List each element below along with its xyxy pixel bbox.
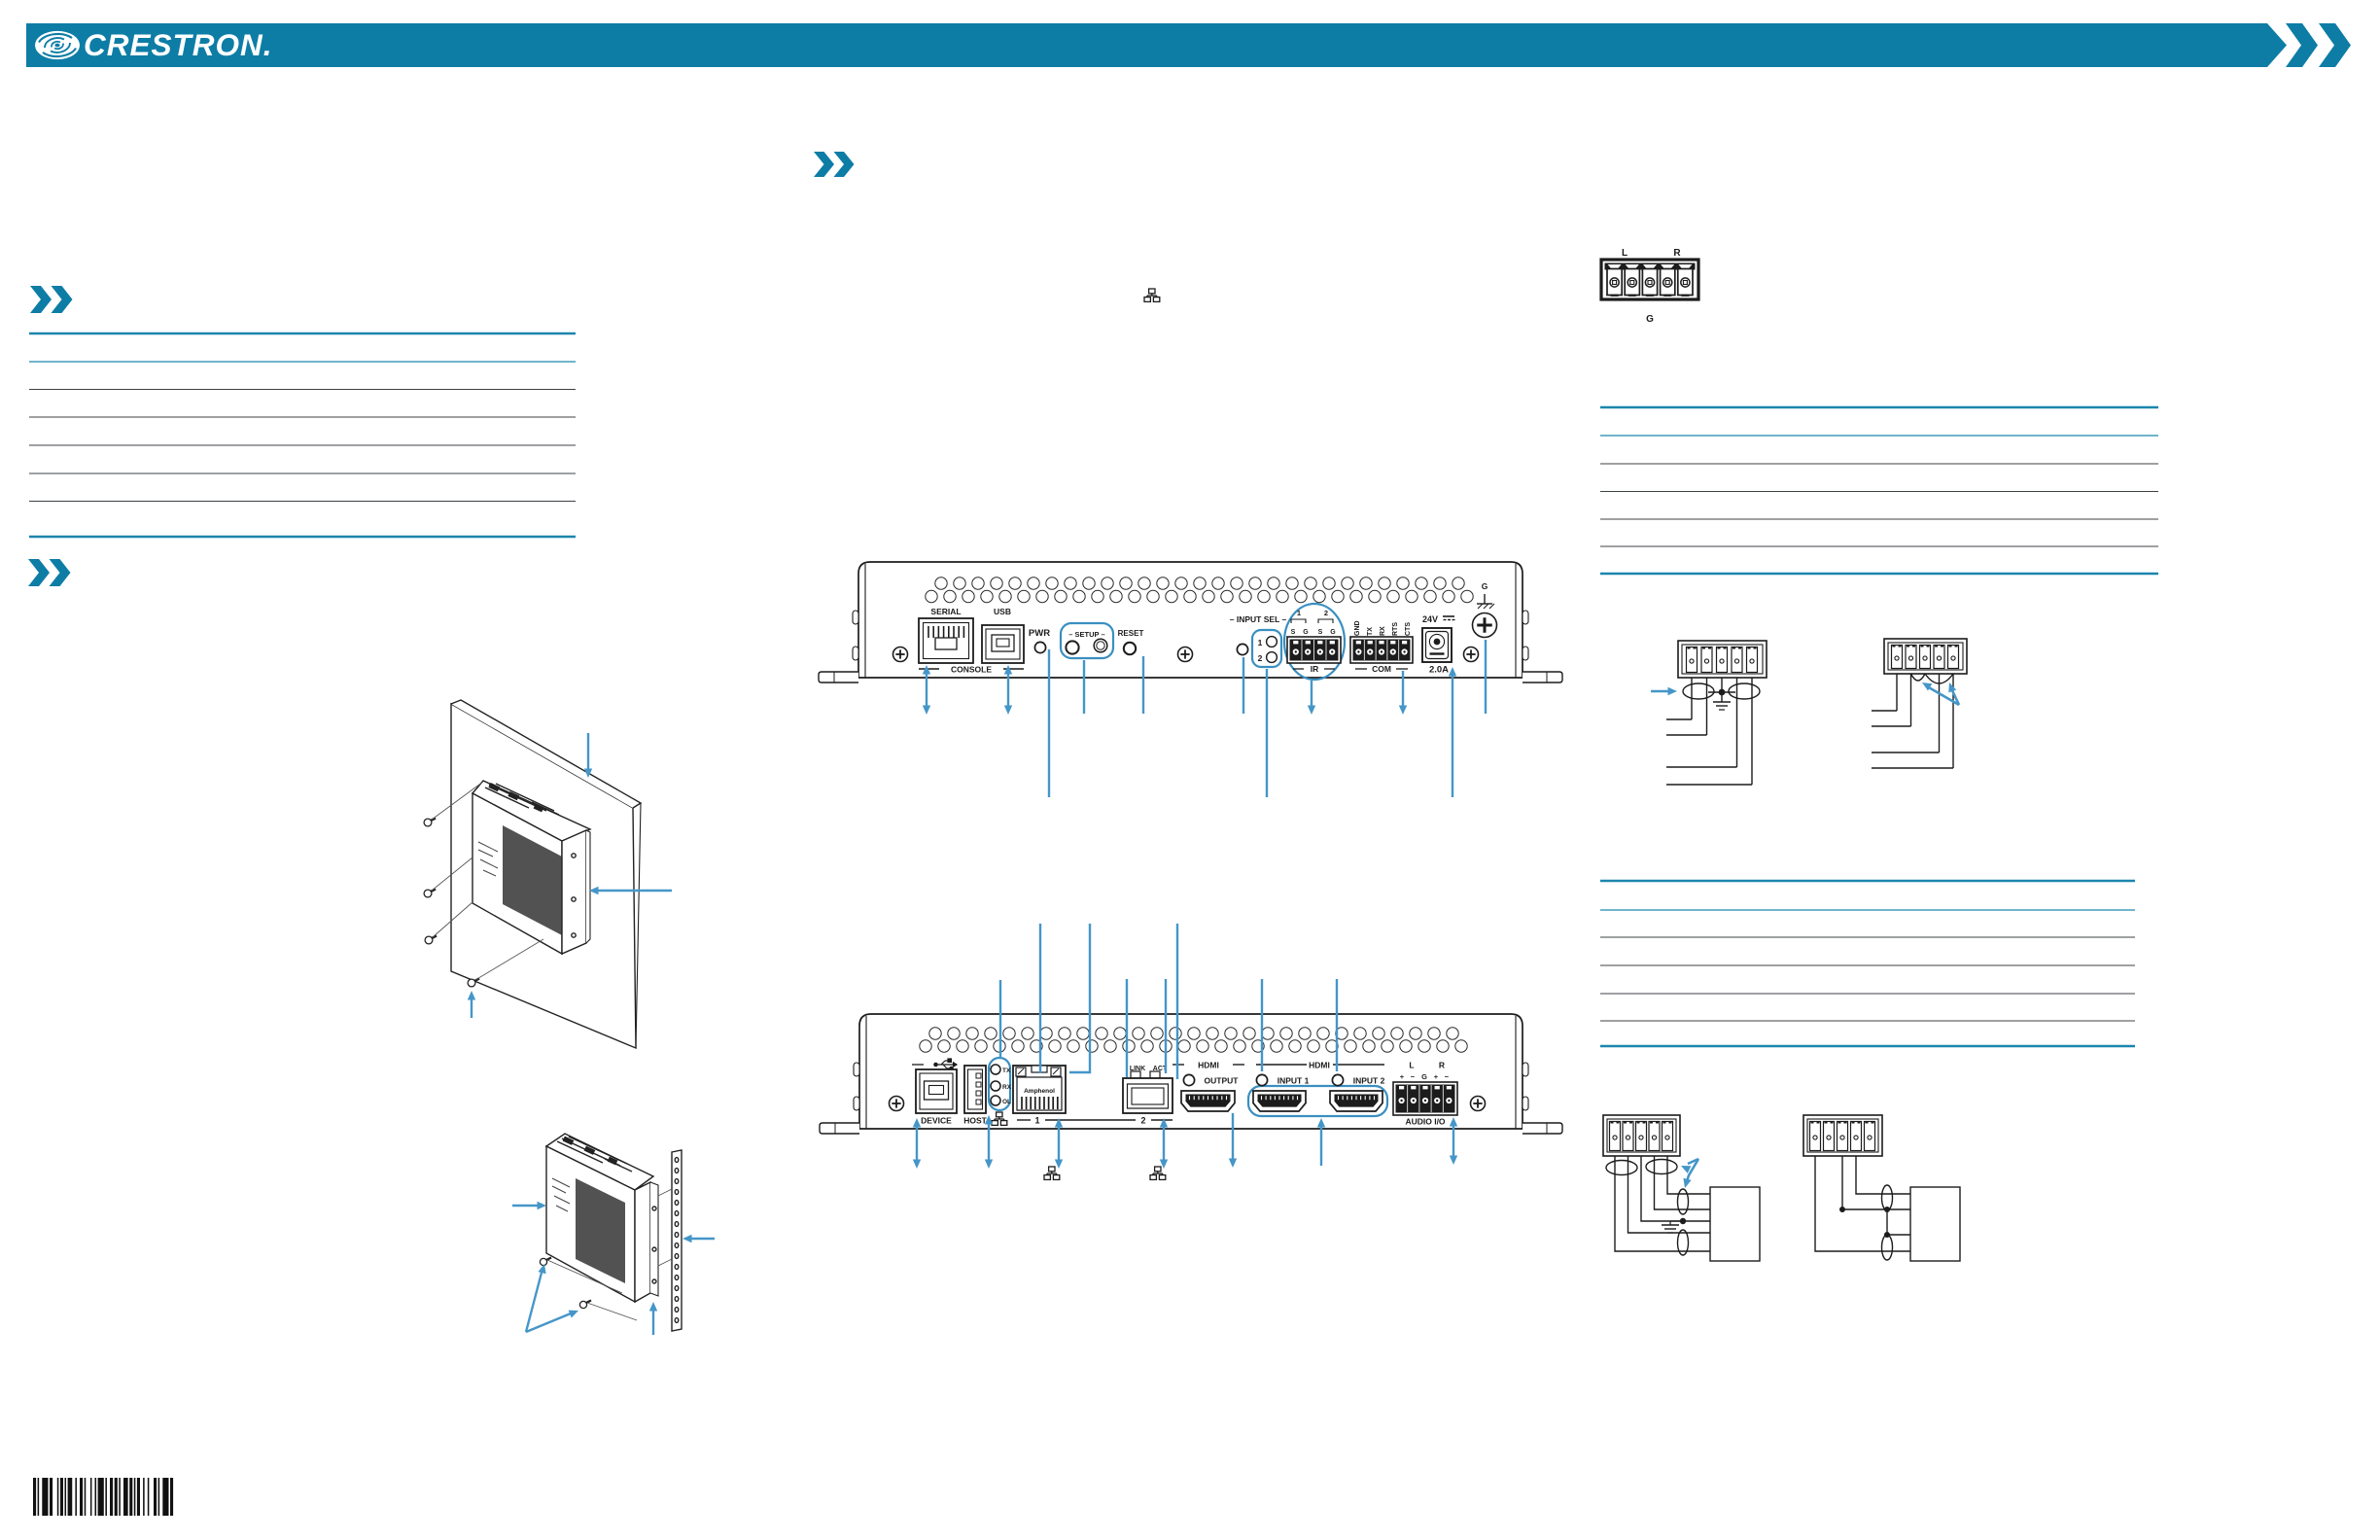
svg-text:−: − xyxy=(1411,1072,1416,1081)
svg-text:GND: GND xyxy=(1354,620,1361,636)
svg-text:2: 2 xyxy=(1258,653,1263,663)
svg-text:S: S xyxy=(1318,629,1323,636)
svg-text:24V: 24V xyxy=(1422,614,1438,624)
svg-text:OL: OL xyxy=(1002,1099,1011,1105)
svg-text:– SETUP –: – SETUP – xyxy=(1068,630,1104,639)
svg-text:G: G xyxy=(1330,629,1336,636)
svg-text:G: G xyxy=(1421,1072,1427,1081)
svg-text:CONSOLE: CONSOLE xyxy=(951,665,992,675)
svg-text:L: L xyxy=(1622,248,1627,259)
svg-text:1: 1 xyxy=(1258,638,1263,647)
svg-text:Amphenol: Amphenol xyxy=(1024,1088,1055,1095)
svg-text:1: 1 xyxy=(1297,609,1301,617)
svg-text:INPUT 1: INPUT 1 xyxy=(1277,1076,1310,1086)
svg-text:2: 2 xyxy=(1140,1116,1145,1126)
svg-text:S: S xyxy=(1291,629,1296,636)
svg-text:INPUT 2: INPUT 2 xyxy=(1353,1076,1385,1086)
svg-text:DEVICE: DEVICE xyxy=(921,1116,952,1126)
svg-text:RESET: RESET xyxy=(1118,629,1144,638)
svg-text:OUTPUT: OUTPUT xyxy=(1205,1076,1240,1086)
svg-text:2.0A: 2.0A xyxy=(1429,665,1449,676)
svg-text:CTS: CTS xyxy=(1405,622,1412,636)
svg-text:G: G xyxy=(1303,629,1309,636)
svg-text:TX: TX xyxy=(1002,1067,1011,1074)
svg-text:– INPUT SEL –: – INPUT SEL – xyxy=(1230,614,1287,624)
svg-text:IR: IR xyxy=(1311,664,1319,674)
svg-text:CRESTRON.: CRESTRON. xyxy=(84,27,273,62)
svg-text:HDMI: HDMI xyxy=(1198,1061,1219,1070)
svg-text:USB: USB xyxy=(994,607,1011,616)
svg-text:COM: COM xyxy=(1372,664,1391,674)
svg-text:SERIAL: SERIAL xyxy=(930,607,961,616)
svg-text:PWR: PWR xyxy=(1029,628,1050,639)
svg-text:+: + xyxy=(1400,1072,1405,1081)
svg-text:2: 2 xyxy=(1324,609,1328,617)
svg-text:HDMI: HDMI xyxy=(1309,1061,1330,1070)
svg-text:L: L xyxy=(1409,1061,1414,1070)
svg-text:1: 1 xyxy=(1034,1116,1039,1126)
svg-text:RX: RX xyxy=(1002,1084,1012,1091)
svg-text:R: R xyxy=(1439,1061,1445,1070)
svg-text:−: − xyxy=(1445,1072,1450,1081)
svg-text:+: + xyxy=(1434,1072,1439,1081)
svg-text:G: G xyxy=(1646,314,1654,325)
svg-text:G: G xyxy=(1482,581,1488,591)
svg-text:R: R xyxy=(1673,248,1681,259)
svg-text:RTS: RTS xyxy=(1392,622,1399,636)
svg-text:RX: RX xyxy=(1380,626,1386,636)
svg-text:HOST: HOST xyxy=(963,1116,987,1126)
svg-text:AUDIO I/O: AUDIO I/O xyxy=(1405,1117,1445,1127)
svg-text:TX: TX xyxy=(1367,627,1374,636)
